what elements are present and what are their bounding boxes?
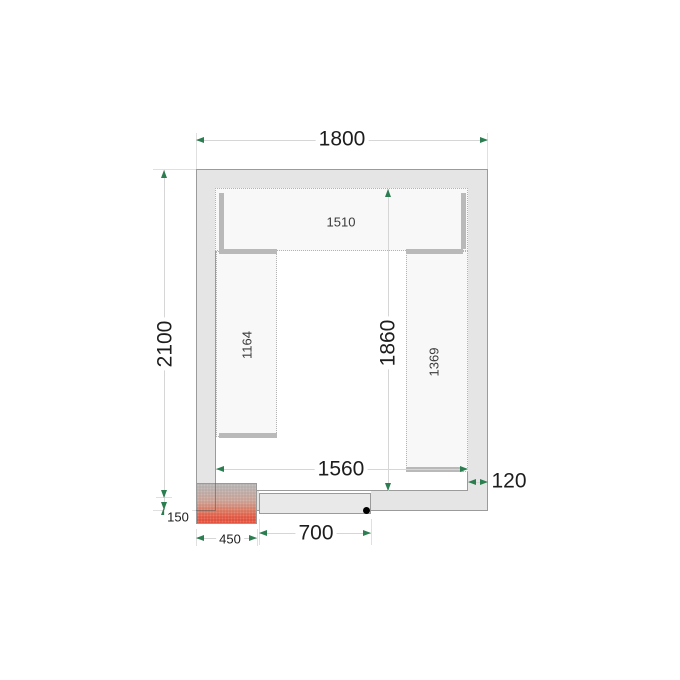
dim-unit-offset: 150 [164, 510, 192, 525]
arrow-icon [480, 137, 488, 143]
arrow-icon [161, 490, 167, 498]
floor-plan-canvas: 1510 1164 1369 1800 2100 1860 1560 120 1 [0, 0, 680, 680]
condensing-unit [196, 483, 257, 524]
dim-inner-width: 1560 [315, 458, 368, 481]
door-leaf [259, 493, 371, 514]
arrow-icon [468, 479, 476, 485]
arrow-icon [385, 483, 391, 491]
arrow-icon [161, 170, 167, 178]
shelf-top-left-edge [219, 193, 224, 249]
dim-inner-height: 1860 [377, 317, 400, 370]
arrow-icon [460, 466, 468, 472]
shelf-left-bottom-edge [219, 433, 277, 438]
dim-door-width: 700 [295, 522, 336, 545]
arrow-icon [196, 137, 204, 143]
door-pivot-dot [363, 507, 370, 514]
dim-outer-width: 1800 [316, 128, 369, 151]
arrow-icon [385, 189, 391, 197]
dim-wall-thickness: 120 [488, 470, 529, 493]
arrow-icon [196, 535, 204, 541]
shelf-top-label: 1510 [324, 215, 359, 230]
shelf-left-top-edge [219, 249, 277, 254]
wall-corner-line-horizontal [196, 510, 216, 511]
arrow-icon [480, 479, 488, 485]
ext-line [153, 169, 196, 170]
dim-outer-height: 2100 [154, 318, 177, 371]
ext-line [371, 519, 372, 545]
arrow-icon [259, 530, 267, 536]
wall-corner-line-vertical [215, 483, 216, 510]
arrow-icon [363, 530, 371, 536]
shelf-right-top-edge [406, 249, 463, 254]
dim-unit-width: 450 [216, 532, 244, 547]
ext-line [257, 529, 258, 546]
shelf-left-label: 1164 [240, 328, 255, 362]
arrow-icon [216, 466, 224, 472]
arrow-icon [249, 535, 257, 541]
shelf-top-right-edge [461, 193, 466, 249]
shelf-right-label: 1369 [427, 345, 442, 380]
